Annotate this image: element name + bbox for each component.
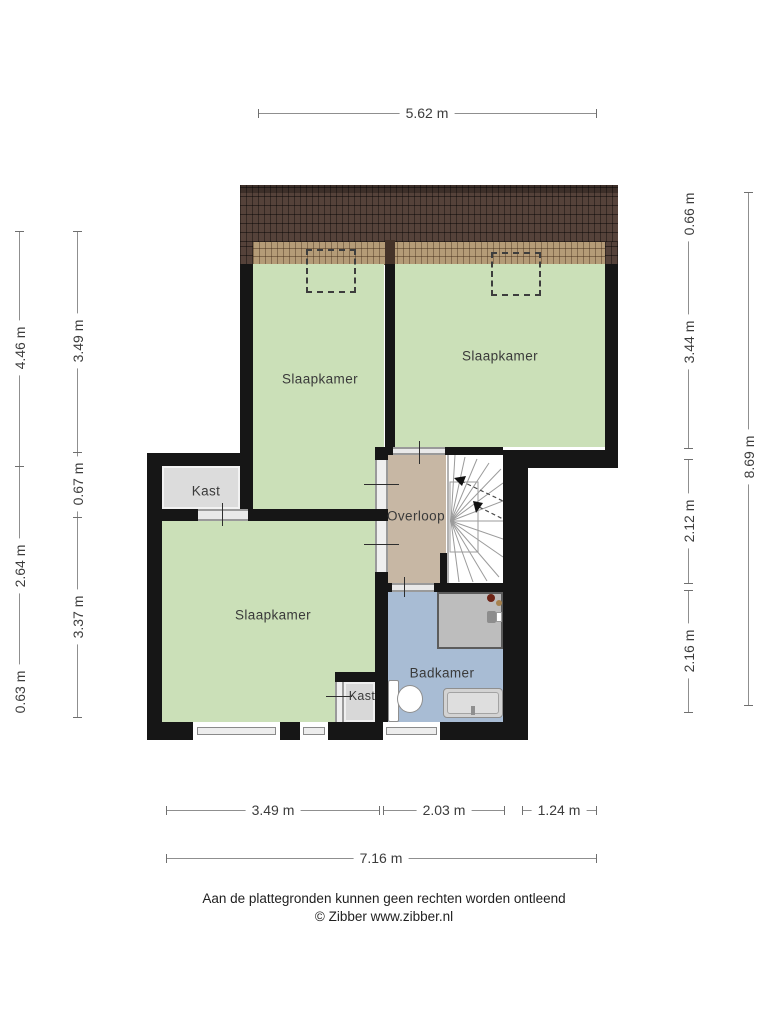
- dim-tick: [258, 109, 259, 118]
- door-bedroom-top-right-tick: [419, 441, 420, 464]
- label-bedroom-top-left: Slaapkamer: [282, 372, 358, 387]
- dim-tick: [596, 854, 597, 863]
- roof-tiles-dark: [240, 185, 618, 242]
- dim-tick: [684, 712, 693, 713]
- roof-window-left: [306, 249, 356, 293]
- dim-left-inner-2: 3.37 m: [70, 590, 86, 645]
- door-closet-lower: [335, 682, 344, 722]
- dim-tick: [166, 854, 167, 863]
- wall-lower-right: [503, 450, 528, 740]
- dim-bottom-total-label: 7.16 m: [354, 850, 409, 866]
- shower-shelf-icon: [496, 612, 502, 622]
- dim-top-label: 5.62 m: [400, 105, 455, 121]
- roof-ridge-shadow: [240, 185, 618, 193]
- dim-tick: [684, 459, 693, 460]
- shower-mixer-icon: [487, 611, 496, 623]
- dim-tick: [744, 705, 753, 706]
- opening-bedroom-top-left-tick: [364, 484, 399, 485]
- dim-tick: [596, 806, 597, 815]
- wall-closet-lower-top: [335, 672, 376, 682]
- roof-center-wall: [385, 240, 395, 265]
- room-bedroom-top-left: [253, 264, 384, 509]
- label-bedroom-top-right: Slaapkamer: [462, 349, 538, 364]
- door-closet-upper-tick: [222, 503, 223, 526]
- label-closet-lower: Kast: [349, 689, 376, 703]
- dim-right-inner-3: 2.16 m: [681, 624, 697, 679]
- wall-upper-left: [240, 264, 253, 521]
- dim-tick: [684, 590, 693, 591]
- dim-tick: [73, 517, 82, 518]
- window-bedroom-large-frame: [197, 727, 276, 735]
- toilet-bowl: [397, 685, 423, 713]
- dim-tick: [596, 109, 597, 118]
- wall-step-right: [503, 450, 618, 468]
- wall-lower-top: [147, 453, 253, 466]
- label-landing: Overloop: [387, 509, 445, 524]
- dim-tick: [73, 231, 82, 232]
- roof-eave-left: [240, 242, 253, 265]
- label-closet-upper: Kast: [192, 484, 221, 499]
- floorplan-canvas: Slaapkamer Slaapkamer Slaapkamer Kast Ka…: [0, 0, 768, 1024]
- bathtub-tap-icon: [471, 706, 475, 715]
- dim-right-outer-label: 8.69 m: [741, 430, 757, 485]
- dim-tick: [522, 806, 523, 815]
- dim-tick: [166, 806, 167, 815]
- dim-bottom-1: 2.03 m: [417, 802, 472, 818]
- dim-tick: [504, 806, 505, 815]
- door-closet-upper: [198, 509, 248, 521]
- opening-bedroom-bottom: [375, 521, 388, 572]
- dim-tick: [73, 717, 82, 718]
- dim-left-outer-1: 2.64 m: [12, 539, 28, 594]
- label-bedroom-bottom: Slaapkamer: [235, 608, 311, 623]
- dim-tick: [744, 192, 753, 193]
- staircase: [449, 455, 503, 583]
- dim-left-outer-2: 0.63 m: [12, 665, 28, 720]
- dim-left-outer-0: 4.46 m: [12, 321, 28, 376]
- dim-left-outer-line: [19, 231, 20, 718]
- door-bathroom-tick: [404, 577, 405, 597]
- dim-bottom-0: 3.49 m: [246, 802, 301, 818]
- dim-tick: [15, 231, 24, 232]
- label-bathroom: Badkamer: [410, 666, 475, 681]
- shower-head-icon: [496, 600, 502, 606]
- dim-right-inner-1: 3.44 m: [681, 315, 697, 370]
- dim-tick: [73, 452, 82, 453]
- opening-bedroom-bottom-tick: [364, 544, 399, 545]
- dim-left-inner-0: 3.49 m: [70, 314, 86, 369]
- dim-right-inner-2: 2.12 m: [681, 494, 697, 549]
- window-bedroom-small-frame: [303, 727, 325, 735]
- wall-divider-lower: [375, 572, 388, 722]
- dim-tick: [15, 466, 24, 467]
- wall-lower-left: [147, 453, 162, 740]
- window-bathroom-frame: [386, 727, 437, 735]
- roof-eave-right: [605, 242, 618, 265]
- dim-bottom-2: 1.24 m: [532, 802, 587, 818]
- wall-mid-band: [162, 509, 384, 521]
- dim-left-inner-1: 0.67 m: [70, 457, 86, 512]
- dim-right-inner-0: 0.66 m: [681, 187, 697, 242]
- footer-disclaimer: Aan de plattegronden kunnen geen rechten…: [0, 891, 768, 906]
- shower-drain-icon: [487, 594, 495, 602]
- dim-tick: [684, 448, 693, 449]
- dim-tick: [684, 583, 693, 584]
- footer-copyright: © Zibber www.zibber.nl: [0, 909, 768, 924]
- dim-tick: [379, 806, 380, 815]
- roof-window-right: [491, 252, 541, 296]
- wall-upper-right: [605, 264, 618, 450]
- door-bathroom: [392, 583, 434, 592]
- dim-tick: [383, 806, 384, 815]
- wall-center-divider: [385, 264, 395, 455]
- wall-divider-stub-top: [375, 447, 388, 460]
